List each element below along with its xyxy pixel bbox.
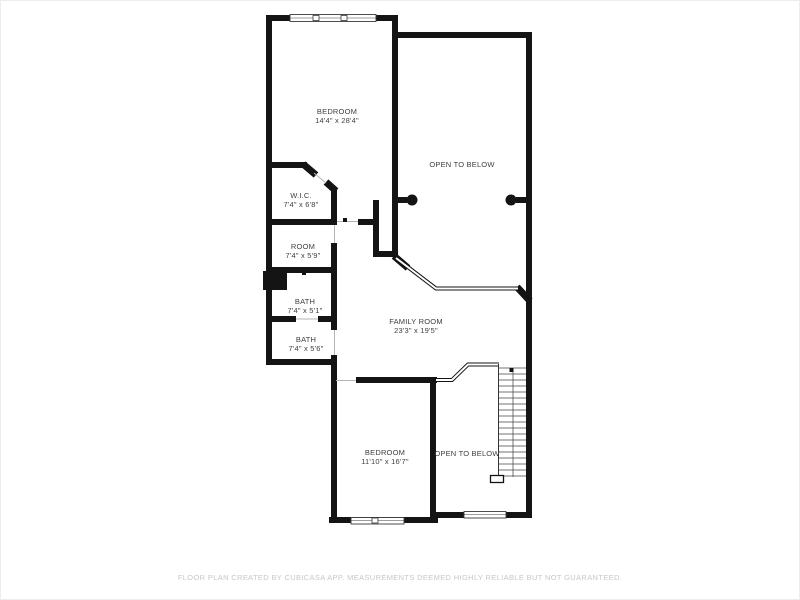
wall-column-stub-right (516, 197, 526, 203)
room-label-bedroom-lower: BEDROOM 11'10" x 16'7" (361, 448, 409, 466)
wall-column-stub-left (397, 197, 407, 203)
room-name: BEDROOM (315, 107, 359, 116)
columns (407, 195, 517, 206)
window-top-mullion-2 (341, 16, 347, 21)
door-wic-angled (314, 173, 326, 183)
room-label-open-to-below-lower: OPEN TO BELOW (434, 449, 499, 458)
column-post-left (407, 195, 418, 206)
staircase (491, 364, 527, 483)
room-dims: 14'4" x 28'4" (315, 116, 359, 125)
wall-top-right (392, 32, 532, 38)
room-name: W.I.C. (284, 191, 319, 200)
wall-right (526, 32, 532, 518)
stairs-landing (491, 476, 504, 483)
room-name: BATH (288, 297, 323, 306)
wall-center-vertical (392, 15, 398, 257)
wall-bath-divider-left (266, 316, 296, 322)
wall-bath-bottom (266, 359, 336, 365)
room-name: OPEN TO BELOW (429, 160, 494, 169)
room-name: OPEN TO BELOW (434, 449, 499, 458)
wall-lower-bedroom-top (356, 377, 437, 383)
wall-bath-divider-right (318, 316, 337, 322)
wall-left (266, 15, 272, 365)
room-label-bath-lower: BATH 7'4" x 5'6" (289, 335, 324, 353)
door-tick-bath (302, 271, 306, 275)
room-dims: 7'4" x 5'6" (289, 344, 324, 353)
stairs-post-dot (510, 368, 514, 372)
column-post-right (506, 195, 517, 206)
stairs-treads (499, 368, 526, 476)
room-name: ROOM (286, 242, 321, 251)
wall-lower-bedroom-right (430, 377, 436, 518)
footer-disclaimer: FLOOR PLAN CREATED BY CUBICASA APP. MEAS… (178, 573, 622, 582)
room-label-bath-upper: BATH 7'4" x 5'1" (288, 297, 323, 315)
wall-hall-vertical (373, 200, 379, 257)
floor-plan-drawing (0, 0, 800, 600)
door-tick-hallway (343, 218, 347, 222)
railing-lower-outer (436, 365, 499, 381)
room-name: BATH (289, 335, 324, 344)
room-dims: 23'3" x 19'5" (389, 326, 443, 335)
room-label-open-to-below-upper: OPEN TO BELOW (429, 160, 494, 169)
room-label-room: ROOM 7'4" x 5'9" (286, 242, 321, 260)
room-dims: 11'10" x 16'7" (361, 457, 409, 466)
window-top-mullion-1 (313, 16, 319, 21)
window-bottom-bedroom-mullion (372, 518, 378, 523)
room-dims: 7'4" x 6'8" (284, 200, 319, 209)
room-label-family-room: FAMILY ROOM 23'3" x 19'5" (389, 317, 443, 335)
floor-plan-page: BEDROOM 14'4" x 28'4" OPEN TO BELOW W.I.… (0, 0, 800, 600)
room-dims: 7'4" x 5'1" (288, 306, 323, 315)
railing-upper-outer (396, 258, 518, 289)
room-label-bedroom-upper: BEDROOM 14'4" x 28'4" (315, 107, 359, 125)
wall-diagonals (303, 164, 530, 301)
room-name: FAMILY ROOM (389, 317, 443, 326)
wall-bedroom-bottom (266, 162, 307, 168)
room-name: BEDROOM (361, 448, 409, 457)
room-dims: 7'4" x 5'9" (286, 251, 321, 260)
walls (263, 15, 532, 523)
wall-wic-bottom (266, 219, 337, 225)
room-label-wic: W.I.C. 7'4" x 6'8" (284, 191, 319, 209)
wall-diagonal-wic-jamb-b (326, 182, 336, 191)
chimney-block (263, 271, 287, 290)
